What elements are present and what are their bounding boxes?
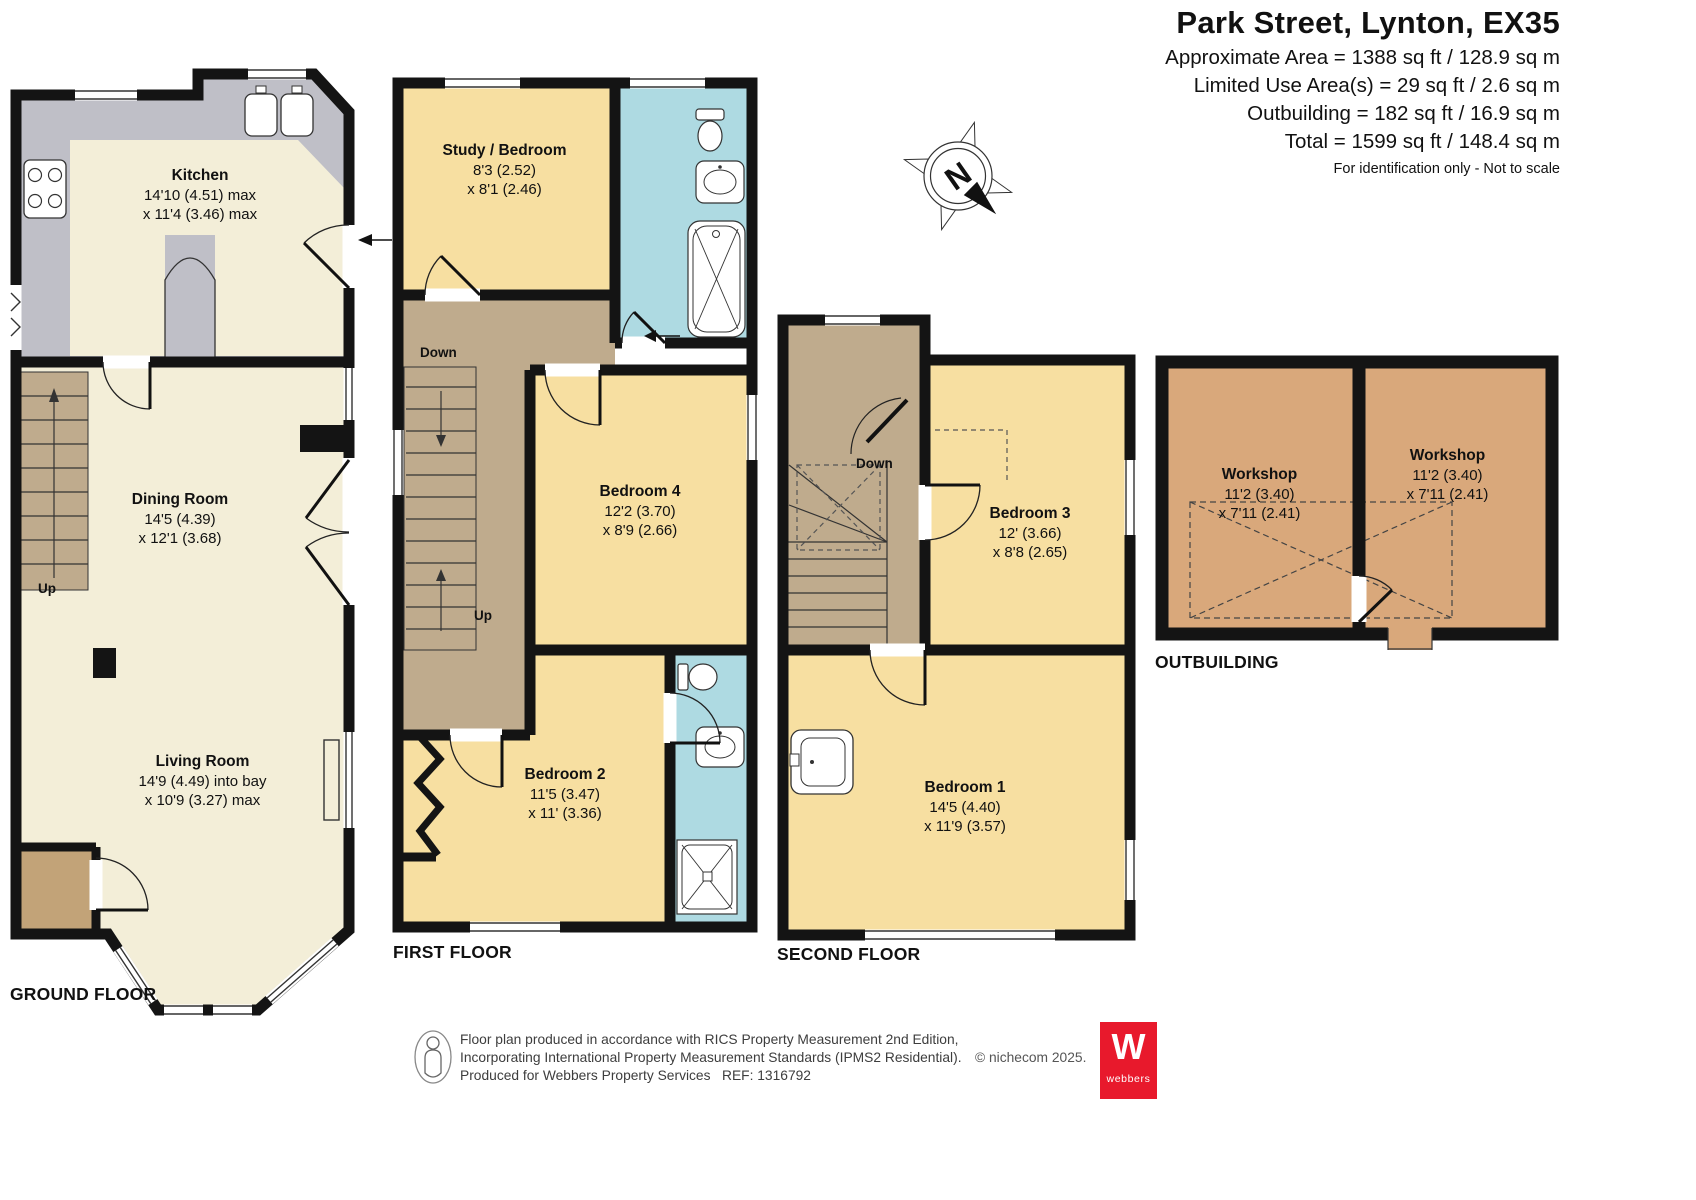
area-line-outbuilding: Outbuilding = 182 sq ft / 16.9 sq m — [640, 100, 1560, 128]
footer-line-2: Incorporating International Property Mea… — [460, 1050, 962, 1065]
room-dims: 12'2 (3.70) x 8'9 (2.66) — [550, 502, 730, 541]
stair-down-label-first: Down — [420, 345, 457, 360]
person-scale-icon — [412, 1028, 454, 1086]
room-name: Dining Room — [85, 490, 275, 510]
room-dims: 14'5 (4.39) x 12'1 (3.68) — [85, 510, 275, 549]
copyright: © nichecom 2025. — [975, 1050, 1086, 1065]
room-name: Living Room — [95, 752, 310, 772]
room-label-workshop-right: Workshop 11'2 (3.40) x 7'11 (2.41) — [1360, 446, 1535, 505]
room-dims: 11'5 (3.47) x 11' (3.36) — [475, 785, 655, 824]
page-title: Park Street, Lynton, EX35 — [640, 2, 1560, 44]
floor-label-ground: GROUND FLOOR — [10, 984, 156, 1005]
room-dims: 14'10 (4.51) max x 11'4 (3.46) max — [105, 186, 295, 225]
compass-icon: N — [898, 112, 1028, 242]
logo-letter: W — [1100, 1022, 1157, 1072]
room-label-study-bedroom: Study / Bedroom 8'3 (2.52) x 8'1 (2.46) — [412, 141, 597, 200]
room-dims: 12' (3.66) x 8'8 (2.65) — [940, 524, 1120, 563]
room-label-bedroom-2: Bedroom 2 11'5 (3.47) x 11' (3.36) — [475, 765, 655, 824]
room-name: Bedroom 4 — [550, 482, 730, 502]
stair-down-label-second: Down — [856, 456, 893, 471]
stair-up-label-ground: Up — [38, 581, 56, 596]
room-label-workshop-left: Workshop 11'2 (3.40) x 7'11 (2.41) — [1172, 465, 1347, 524]
area-line-limited-use: Limited Use Area(s) = 29 sq ft / 2.6 sq … — [640, 72, 1560, 100]
floor-label-outbuilding: OUTBUILDING — [1155, 652, 1279, 673]
room-label-dining-room: Dining Room 14'5 (4.39) x 12'1 (3.68) — [85, 490, 275, 549]
room-name: Bedroom 1 — [875, 778, 1055, 798]
logo-name: webbers — [1100, 1073, 1157, 1085]
stair-up-label-first: Up — [474, 608, 492, 623]
room-label-bedroom-3: Bedroom 3 12' (3.66) x 8'8 (2.65) — [940, 504, 1120, 563]
room-label-kitchen: Kitchen 14'10 (4.51) max x 11'4 (3.46) m… — [105, 166, 295, 225]
area-line-approximate: Approximate Area = 1388 sq ft / 128.9 sq… — [640, 44, 1560, 72]
room-name: Bedroom 3 — [940, 504, 1120, 524]
room-dims: 11'2 (3.40) x 7'11 (2.41) — [1360, 466, 1535, 505]
identification-note: For identification only - Not to scale — [640, 161, 1560, 177]
footer-line-1: Floor plan produced in accordance with R… — [460, 1032, 958, 1047]
room-label-bedroom-1: Bedroom 1 14'5 (4.40) x 11'9 (3.57) — [875, 778, 1055, 837]
room-label-living-room: Living Room 14'9 (4.49) into bay x 10'9 … — [95, 752, 310, 811]
room-label-bedroom-4: Bedroom 4 12'2 (3.70) x 8'9 (2.66) — [550, 482, 730, 541]
room-name: Bedroom 2 — [475, 765, 655, 785]
second-floor-plan — [775, 310, 1145, 944]
room-dims: 14'5 (4.40) x 11'9 (3.57) — [875, 798, 1055, 837]
room-dims: 14'9 (4.49) into bay x 10'9 (3.27) max — [95, 772, 310, 811]
area-line-total: Total = 1599 sq ft / 148.4 sq m — [640, 128, 1560, 156]
room-name: Study / Bedroom — [412, 141, 597, 161]
footer-line-3: Produced for Webbers Property Services R… — [460, 1068, 811, 1083]
header: Park Street, Lynton, EX35 Approximate Ar… — [640, 2, 1560, 177]
floor-label-first: FIRST FLOOR — [393, 942, 512, 963]
room-name: Kitchen — [105, 166, 295, 186]
webbers-logo: W webbers — [1100, 1022, 1157, 1099]
room-dims: 11'2 (3.40) x 7'11 (2.41) — [1172, 485, 1347, 524]
room-dims: 8'3 (2.52) x 8'1 (2.46) — [412, 161, 597, 200]
floor-label-second: SECOND FLOOR — [777, 944, 920, 965]
floorplan-page: Park Street, Lynton, EX35 Approximate Ar… — [0, 0, 1696, 1200]
room-name: Workshop — [1360, 446, 1535, 466]
room-name: Workshop — [1172, 465, 1347, 485]
